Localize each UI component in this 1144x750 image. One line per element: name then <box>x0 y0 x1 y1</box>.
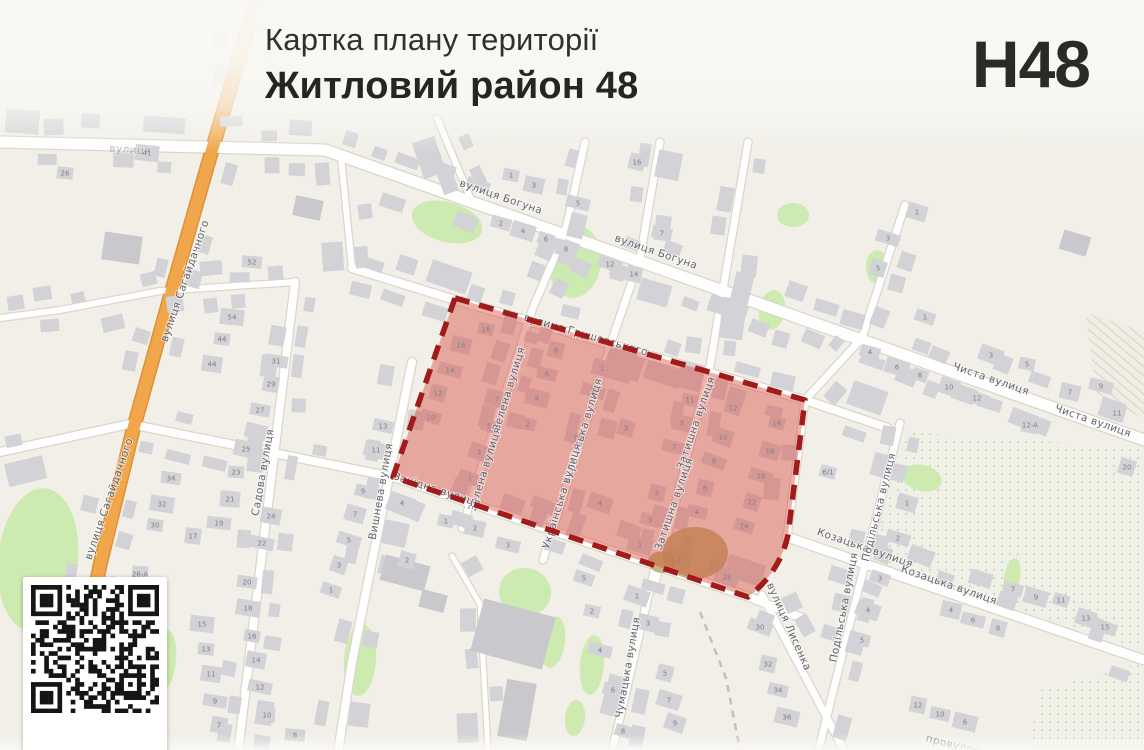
territory-plan-card: вулиця Богунавулиця Богунавулиця Грушевс… <box>0 0 1144 750</box>
house-number: 2 <box>499 220 503 228</box>
house-number: 1 <box>509 172 513 180</box>
house-number: 12 <box>914 702 923 710</box>
house-number: 14 <box>446 367 455 375</box>
house-number: 34 <box>167 475 176 483</box>
house-number: 1 <box>905 500 909 508</box>
house-number: 5 <box>347 537 351 545</box>
house-number: 12 <box>434 390 443 398</box>
house-number: 3 <box>646 620 650 628</box>
house-number: 22 <box>258 540 267 548</box>
house-number: 7 <box>217 722 221 730</box>
house-number: 8 <box>996 625 1000 633</box>
qr-code <box>31 585 159 713</box>
house-number: 24 <box>267 513 276 521</box>
house-number: 2 <box>677 556 681 564</box>
house-number: 20 <box>757 473 766 481</box>
house-number: 31 <box>272 358 281 366</box>
house-number: 4 <box>598 647 603 655</box>
house-number: 12 <box>606 261 615 269</box>
house-number: 7 <box>1011 586 1015 594</box>
house-number: 2 <box>590 608 594 616</box>
house-number: 10 <box>719 434 728 442</box>
house-number: 8 <box>918 372 922 380</box>
house-number: 32 <box>764 661 773 669</box>
house-number: 52 <box>248 259 257 267</box>
house-number: 3 <box>477 449 481 457</box>
house-number: 1 <box>638 542 642 550</box>
house-number: 2 <box>526 421 530 429</box>
house-number: 22 <box>748 499 757 507</box>
house-number: 7 <box>495 396 499 404</box>
house-number: 6 <box>703 485 708 493</box>
house-number: 5 <box>487 423 491 431</box>
house-number: 8 <box>712 458 716 466</box>
house-number: 3 <box>878 575 882 583</box>
house-number: 11 <box>372 447 381 455</box>
house-number: 7 <box>573 435 577 443</box>
house-number: 20 <box>243 579 252 587</box>
house-number: 44 <box>218 336 227 344</box>
house-number: 3 <box>337 562 341 570</box>
house-number: 1 <box>923 314 927 322</box>
house-number: 15 <box>1101 624 1110 632</box>
house-number: 36 <box>783 714 792 722</box>
house-number: 24 <box>740 523 749 531</box>
house-number: 26 <box>61 170 70 178</box>
house-number: 4 <box>949 607 954 615</box>
house-number: 4 <box>695 509 700 517</box>
house-number: 23 <box>232 469 241 477</box>
house-number: 6 <box>971 617 976 625</box>
house-number: 2 <box>473 525 477 533</box>
house-number: 10 <box>945 384 954 392</box>
house-number: 10 <box>427 414 436 422</box>
house-number: 9 <box>1034 594 1038 602</box>
house-number: 20 <box>1123 464 1132 472</box>
house-number: 8 <box>293 732 297 740</box>
house-number: 9 <box>680 420 684 428</box>
house-number: 1 <box>444 518 448 526</box>
house-number: 14 <box>252 657 261 665</box>
house-number: 2 <box>405 557 409 565</box>
house-number: 4 <box>400 500 405 508</box>
house-number: 16 <box>633 159 642 167</box>
house-number: 28 <box>723 574 732 582</box>
house-number: 21 <box>226 496 235 504</box>
house-number: 8 <box>554 347 558 355</box>
house-number: 14 <box>630 271 639 279</box>
house-number: 4 <box>868 349 873 357</box>
house-number: 2 <box>896 535 900 543</box>
house-number: 16 <box>457 342 466 350</box>
house-number: 7 <box>667 697 671 705</box>
house-number: 29 <box>267 381 276 389</box>
house-number: 5 <box>576 200 580 208</box>
house-number: 25 <box>242 446 251 454</box>
house-number: 9 <box>213 698 217 706</box>
house-number: 3 <box>989 352 993 360</box>
house-number: 54 <box>228 314 237 322</box>
house-number: 11 <box>1057 597 1066 605</box>
house-number: 5 <box>876 265 880 273</box>
house-number: 1 <box>600 365 604 373</box>
house-number: 10 <box>936 711 945 719</box>
house-number: 8 <box>564 246 568 254</box>
house-number: 7 <box>660 230 664 238</box>
house-number: 8 <box>621 728 625 736</box>
house-number: 6 <box>544 236 549 244</box>
qr-code-card <box>23 577 167 750</box>
house-number: 16 <box>248 633 257 641</box>
house-number: 41 <box>143 150 152 158</box>
house-number: 6 <box>545 371 550 379</box>
house-number: 15 <box>198 621 207 629</box>
house-number: 5 <box>655 490 659 498</box>
house-number: 16 <box>773 420 782 428</box>
house-number: 1 <box>329 587 333 595</box>
house-number: 13 <box>1082 615 1091 623</box>
house-number: 5 <box>663 670 667 678</box>
map-canvas: вулиця Богунавулиця Богунавулиця Грушевс… <box>0 0 1144 750</box>
house-number: 30 <box>756 624 765 632</box>
house-number: 13 <box>379 423 388 431</box>
house-number: 4 <box>866 607 871 615</box>
house-number: 12 <box>729 405 738 413</box>
house-number: 1 <box>635 593 639 601</box>
house-number: 2 <box>591 388 595 396</box>
house-number: 12-А <box>1022 422 1038 430</box>
house-number: 34 <box>774 687 783 695</box>
house-number: 10 <box>263 712 272 720</box>
house-number: 5 <box>1025 361 1029 369</box>
house-number: 7 <box>353 511 357 519</box>
house-number: 27 <box>256 407 265 415</box>
house-number: 3 <box>648 517 652 525</box>
house-number: 11 <box>686 397 695 405</box>
house-number: 13 <box>202 646 211 654</box>
house-number: 32 <box>158 501 167 509</box>
house-number: 7 <box>1068 389 1072 397</box>
house-number: 4 <box>535 395 540 403</box>
house-number: 11 <box>207 671 216 679</box>
house-number: 19 <box>215 520 224 528</box>
house-number: 18 <box>766 448 775 456</box>
house-number: 18 <box>482 326 491 334</box>
house-number: 30 <box>151 522 160 530</box>
house-number: 3 <box>624 425 628 433</box>
house-number: 1 <box>468 475 472 483</box>
house-number: 18 <box>244 605 253 613</box>
house-number: 3 <box>506 542 510 550</box>
house-number: 6/1 <box>822 469 833 477</box>
house-number: 1 <box>915 209 919 217</box>
house-number: 9 <box>361 488 365 496</box>
house-number: 44 <box>208 361 217 369</box>
house-number: 17 <box>189 533 198 541</box>
house-number: 6 <box>963 719 968 727</box>
house-number: 5 <box>582 575 586 583</box>
house-number: 9 <box>673 720 677 728</box>
house-number: 4 <box>521 228 526 236</box>
house-number: 12 <box>973 395 982 403</box>
house-number: 3 <box>886 235 890 243</box>
house-number: 3 <box>532 182 536 190</box>
house-number: 4 <box>598 500 603 508</box>
house-number: 7 <box>672 444 676 452</box>
house-number: 11 <box>1113 410 1122 418</box>
house-number: 6 <box>611 687 616 695</box>
house-number: 9 <box>1099 383 1103 391</box>
house-number: 12 <box>256 684 265 692</box>
house-number: 5 <box>860 637 864 645</box>
house-number: 6 <box>895 364 900 372</box>
